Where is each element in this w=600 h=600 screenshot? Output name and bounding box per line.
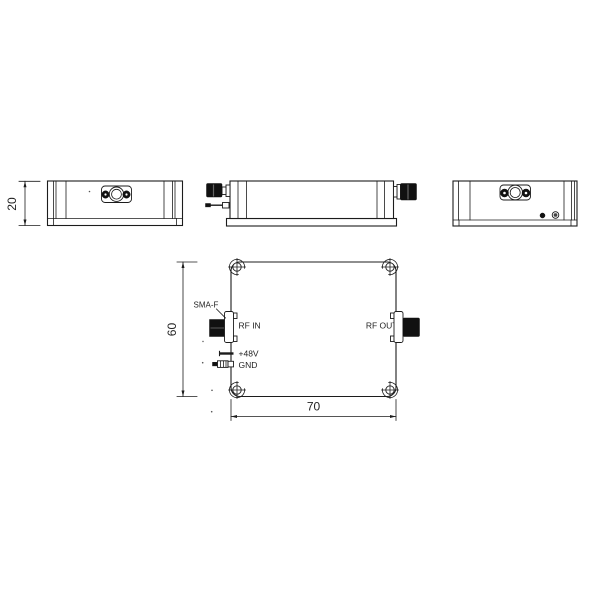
arrow-right xyxy=(390,415,396,418)
flange-step-inner xyxy=(226,185,230,197)
screw-center xyxy=(104,193,106,195)
arrow-left xyxy=(231,415,237,418)
mount-base xyxy=(228,361,234,367)
side-right-rf-connector xyxy=(394,184,417,201)
flange-step-outer xyxy=(222,187,226,195)
rf-out-label: RF OUT xyxy=(366,321,398,331)
indicator-dot xyxy=(540,213,545,218)
dimension-length-70: 70 xyxy=(231,400,396,421)
flange-tab-top xyxy=(234,313,238,319)
arrow-up xyxy=(24,181,27,187)
arrow-up xyxy=(182,262,185,268)
plus48v-label: +48V xyxy=(239,349,259,359)
view-end-left xyxy=(48,181,183,226)
scan-speck xyxy=(202,341,203,342)
pin-tip xyxy=(206,204,211,207)
gnd-feedthrough xyxy=(213,361,234,368)
sma-f-callout: SMA-F xyxy=(194,301,226,319)
connector-flange-plate xyxy=(394,312,403,343)
view-side-front xyxy=(206,181,417,226)
scan-speck xyxy=(211,390,213,392)
sma-f-label: SMA-F xyxy=(194,301,219,310)
side-feedthrough-pin xyxy=(206,203,230,209)
scan-speck xyxy=(89,191,91,193)
side-baseplate xyxy=(227,219,397,227)
end-right-connector xyxy=(500,185,531,200)
rf-out-connector xyxy=(391,312,420,343)
connector-flange-plate xyxy=(225,312,234,343)
arrow-down xyxy=(24,220,27,226)
pin-tip xyxy=(213,362,218,366)
flange-tab-top xyxy=(391,313,395,319)
scan-speck xyxy=(202,362,204,364)
flange-step-inner xyxy=(397,185,401,200)
sma-nut-body xyxy=(207,184,223,198)
view-end-right xyxy=(453,181,577,226)
flange-tab-bottom xyxy=(391,336,395,342)
dim-text-height: 20 xyxy=(5,197,19,211)
flange-tab-bottom xyxy=(234,336,238,342)
end-left-connector xyxy=(102,186,132,203)
dimension-width-60: 60 xyxy=(165,262,197,397)
technical-drawing-page: 20 xyxy=(0,0,600,600)
hex-body xyxy=(218,361,229,368)
screw-center xyxy=(125,193,127,195)
scan-speck xyxy=(211,411,213,413)
dim-text-length: 70 xyxy=(307,400,321,414)
screw-center xyxy=(503,192,506,195)
gnd-label: GND xyxy=(239,360,258,370)
pin-base xyxy=(223,203,230,209)
dim-text-width: 60 xyxy=(165,323,179,337)
view-top-main: RF OUT xyxy=(194,259,420,413)
outline-drawing-svg: 20 xyxy=(0,0,600,600)
sma-nut-body xyxy=(403,318,420,337)
arrow-down xyxy=(182,391,185,397)
dimension-height-20: 20 xyxy=(5,181,40,225)
rf-in-label: RF IN xyxy=(239,321,261,331)
hex-screw xyxy=(552,212,559,219)
side-left-rf-connector xyxy=(207,184,231,198)
flange-step-outer xyxy=(394,187,398,198)
side-body xyxy=(230,181,394,219)
screw-center xyxy=(525,192,528,195)
